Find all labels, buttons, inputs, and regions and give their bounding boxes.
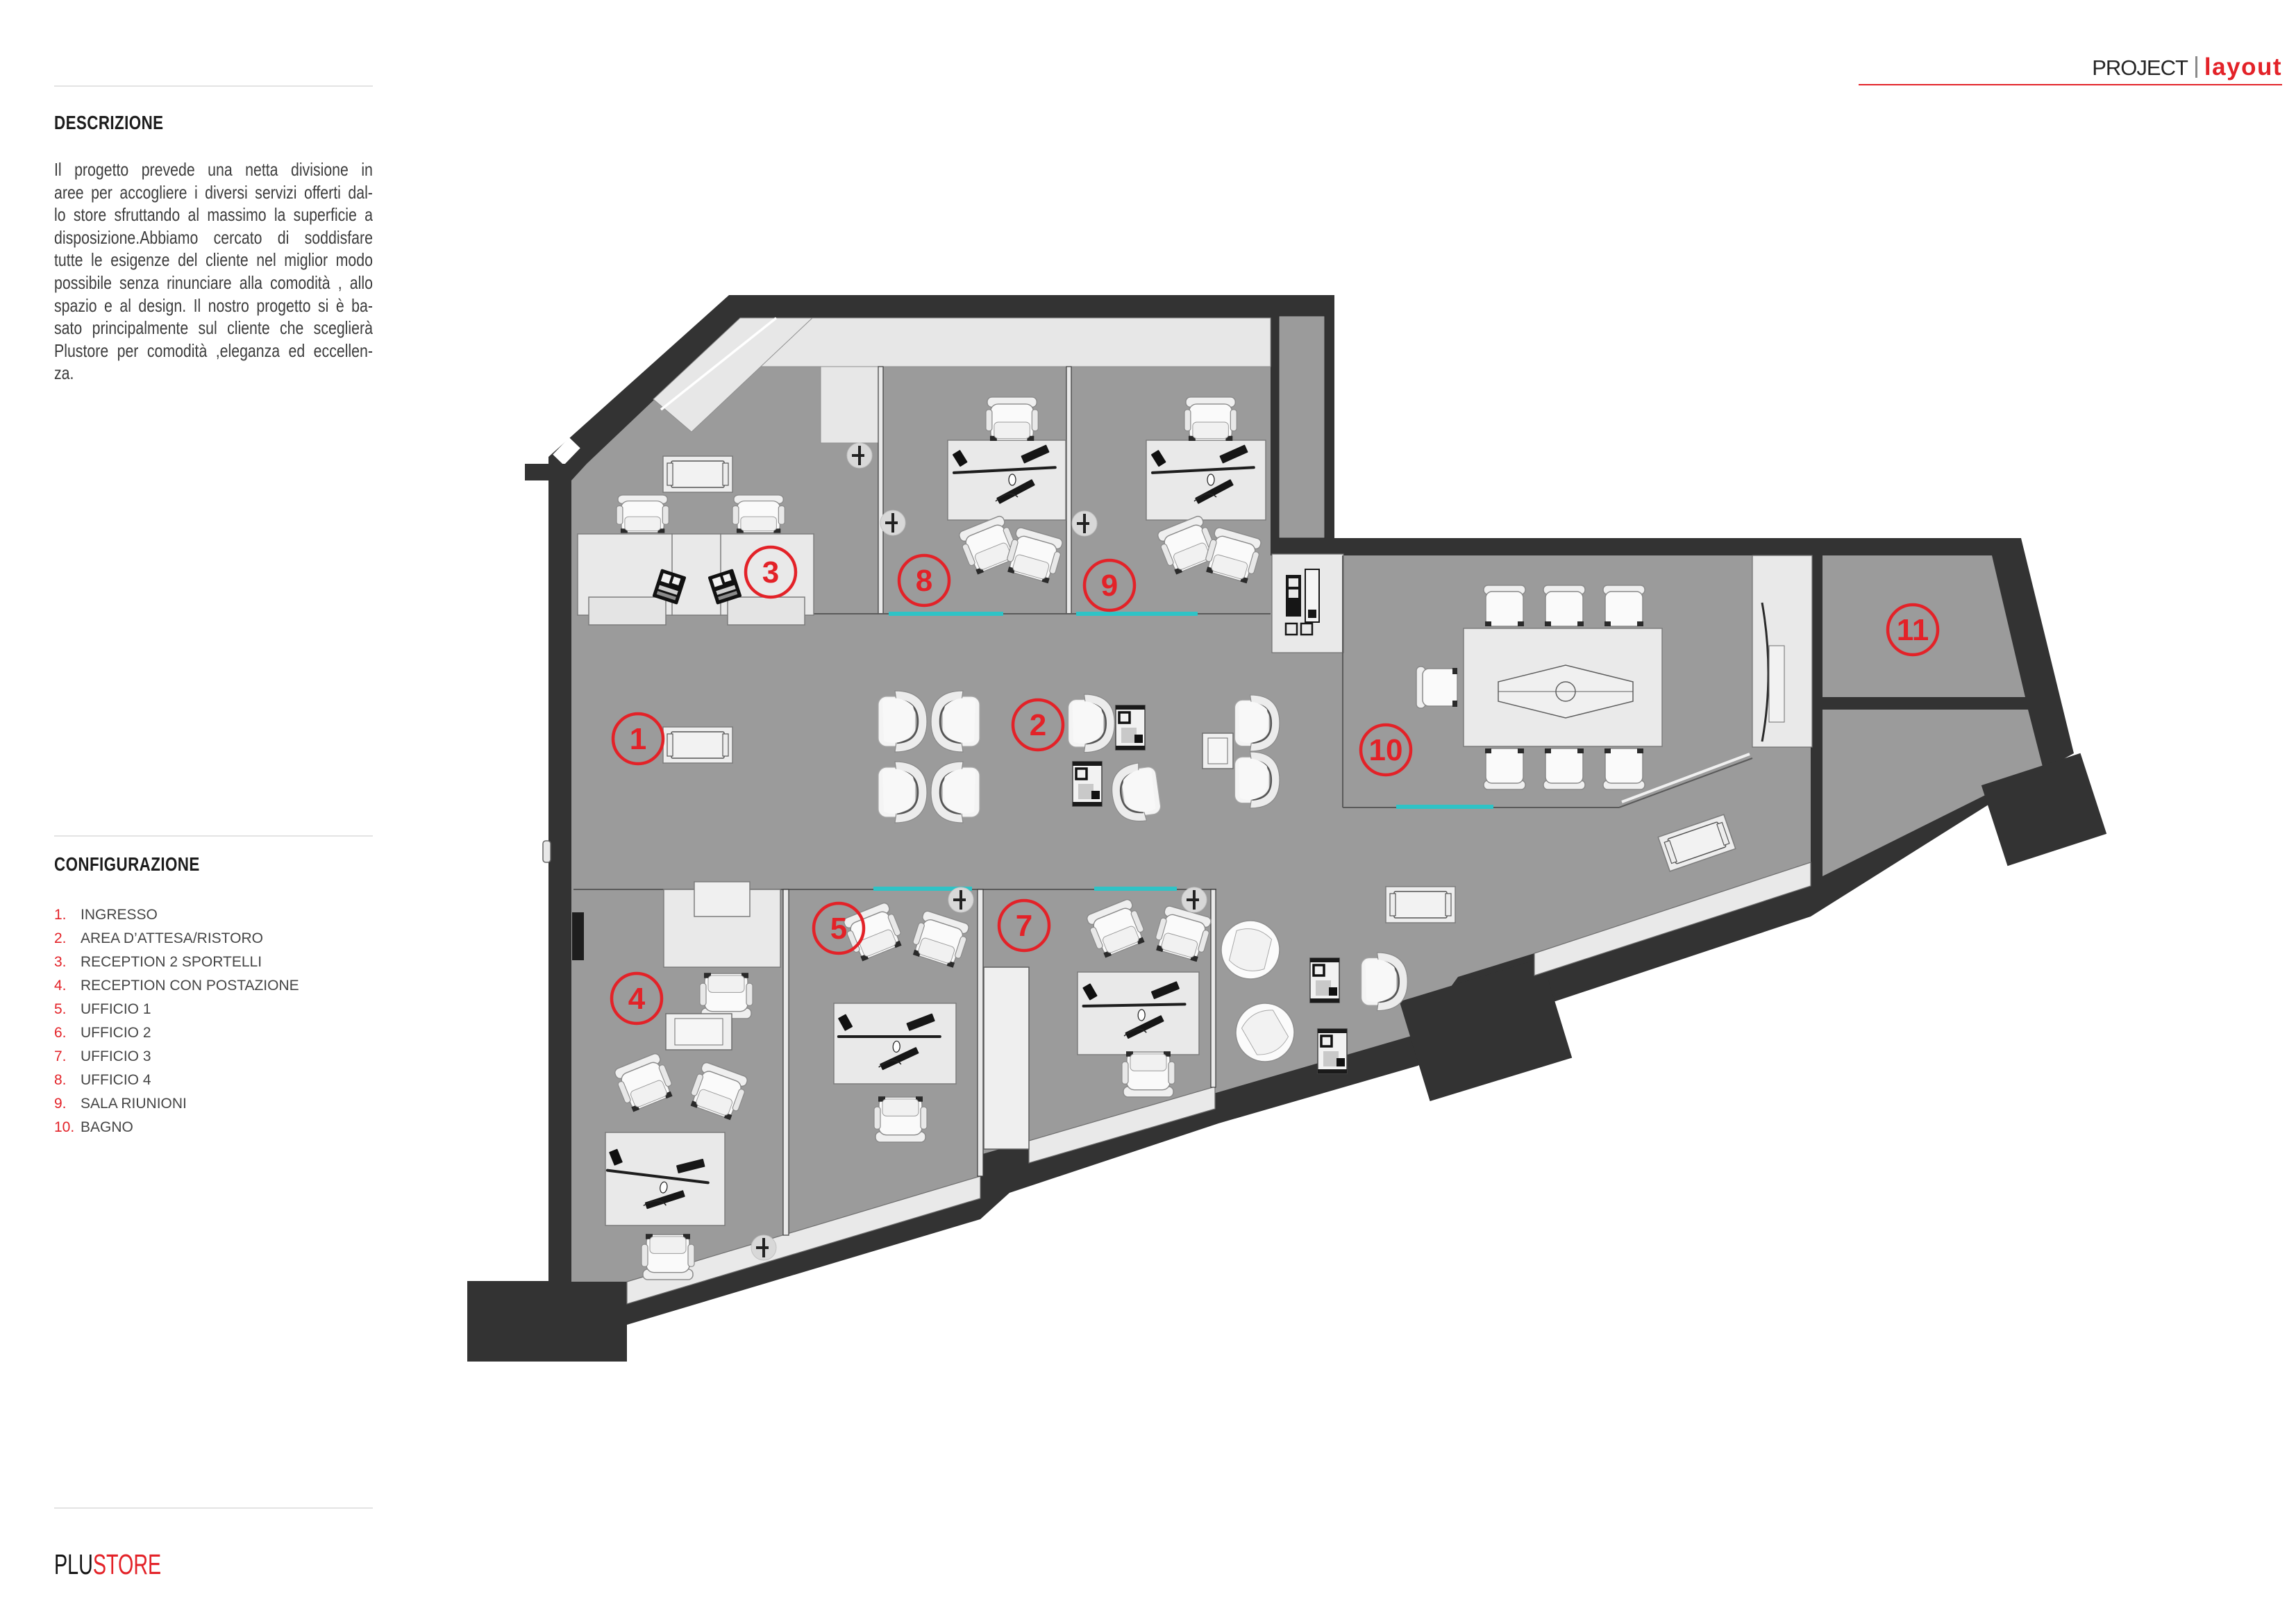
svg-text:7: 7 <box>1016 909 1032 943</box>
svg-text:1: 1 <box>630 722 646 756</box>
svg-text:5: 5 <box>830 912 847 946</box>
svg-text:2: 2 <box>1030 708 1046 742</box>
svg-text:3: 3 <box>762 555 779 589</box>
svg-text:9: 9 <box>1101 569 1118 603</box>
svg-text:4: 4 <box>628 982 646 1016</box>
svg-text:10: 10 <box>1369 733 1403 767</box>
svg-text:8: 8 <box>916 564 932 598</box>
svg-text:11: 11 <box>1897 613 1929 647</box>
